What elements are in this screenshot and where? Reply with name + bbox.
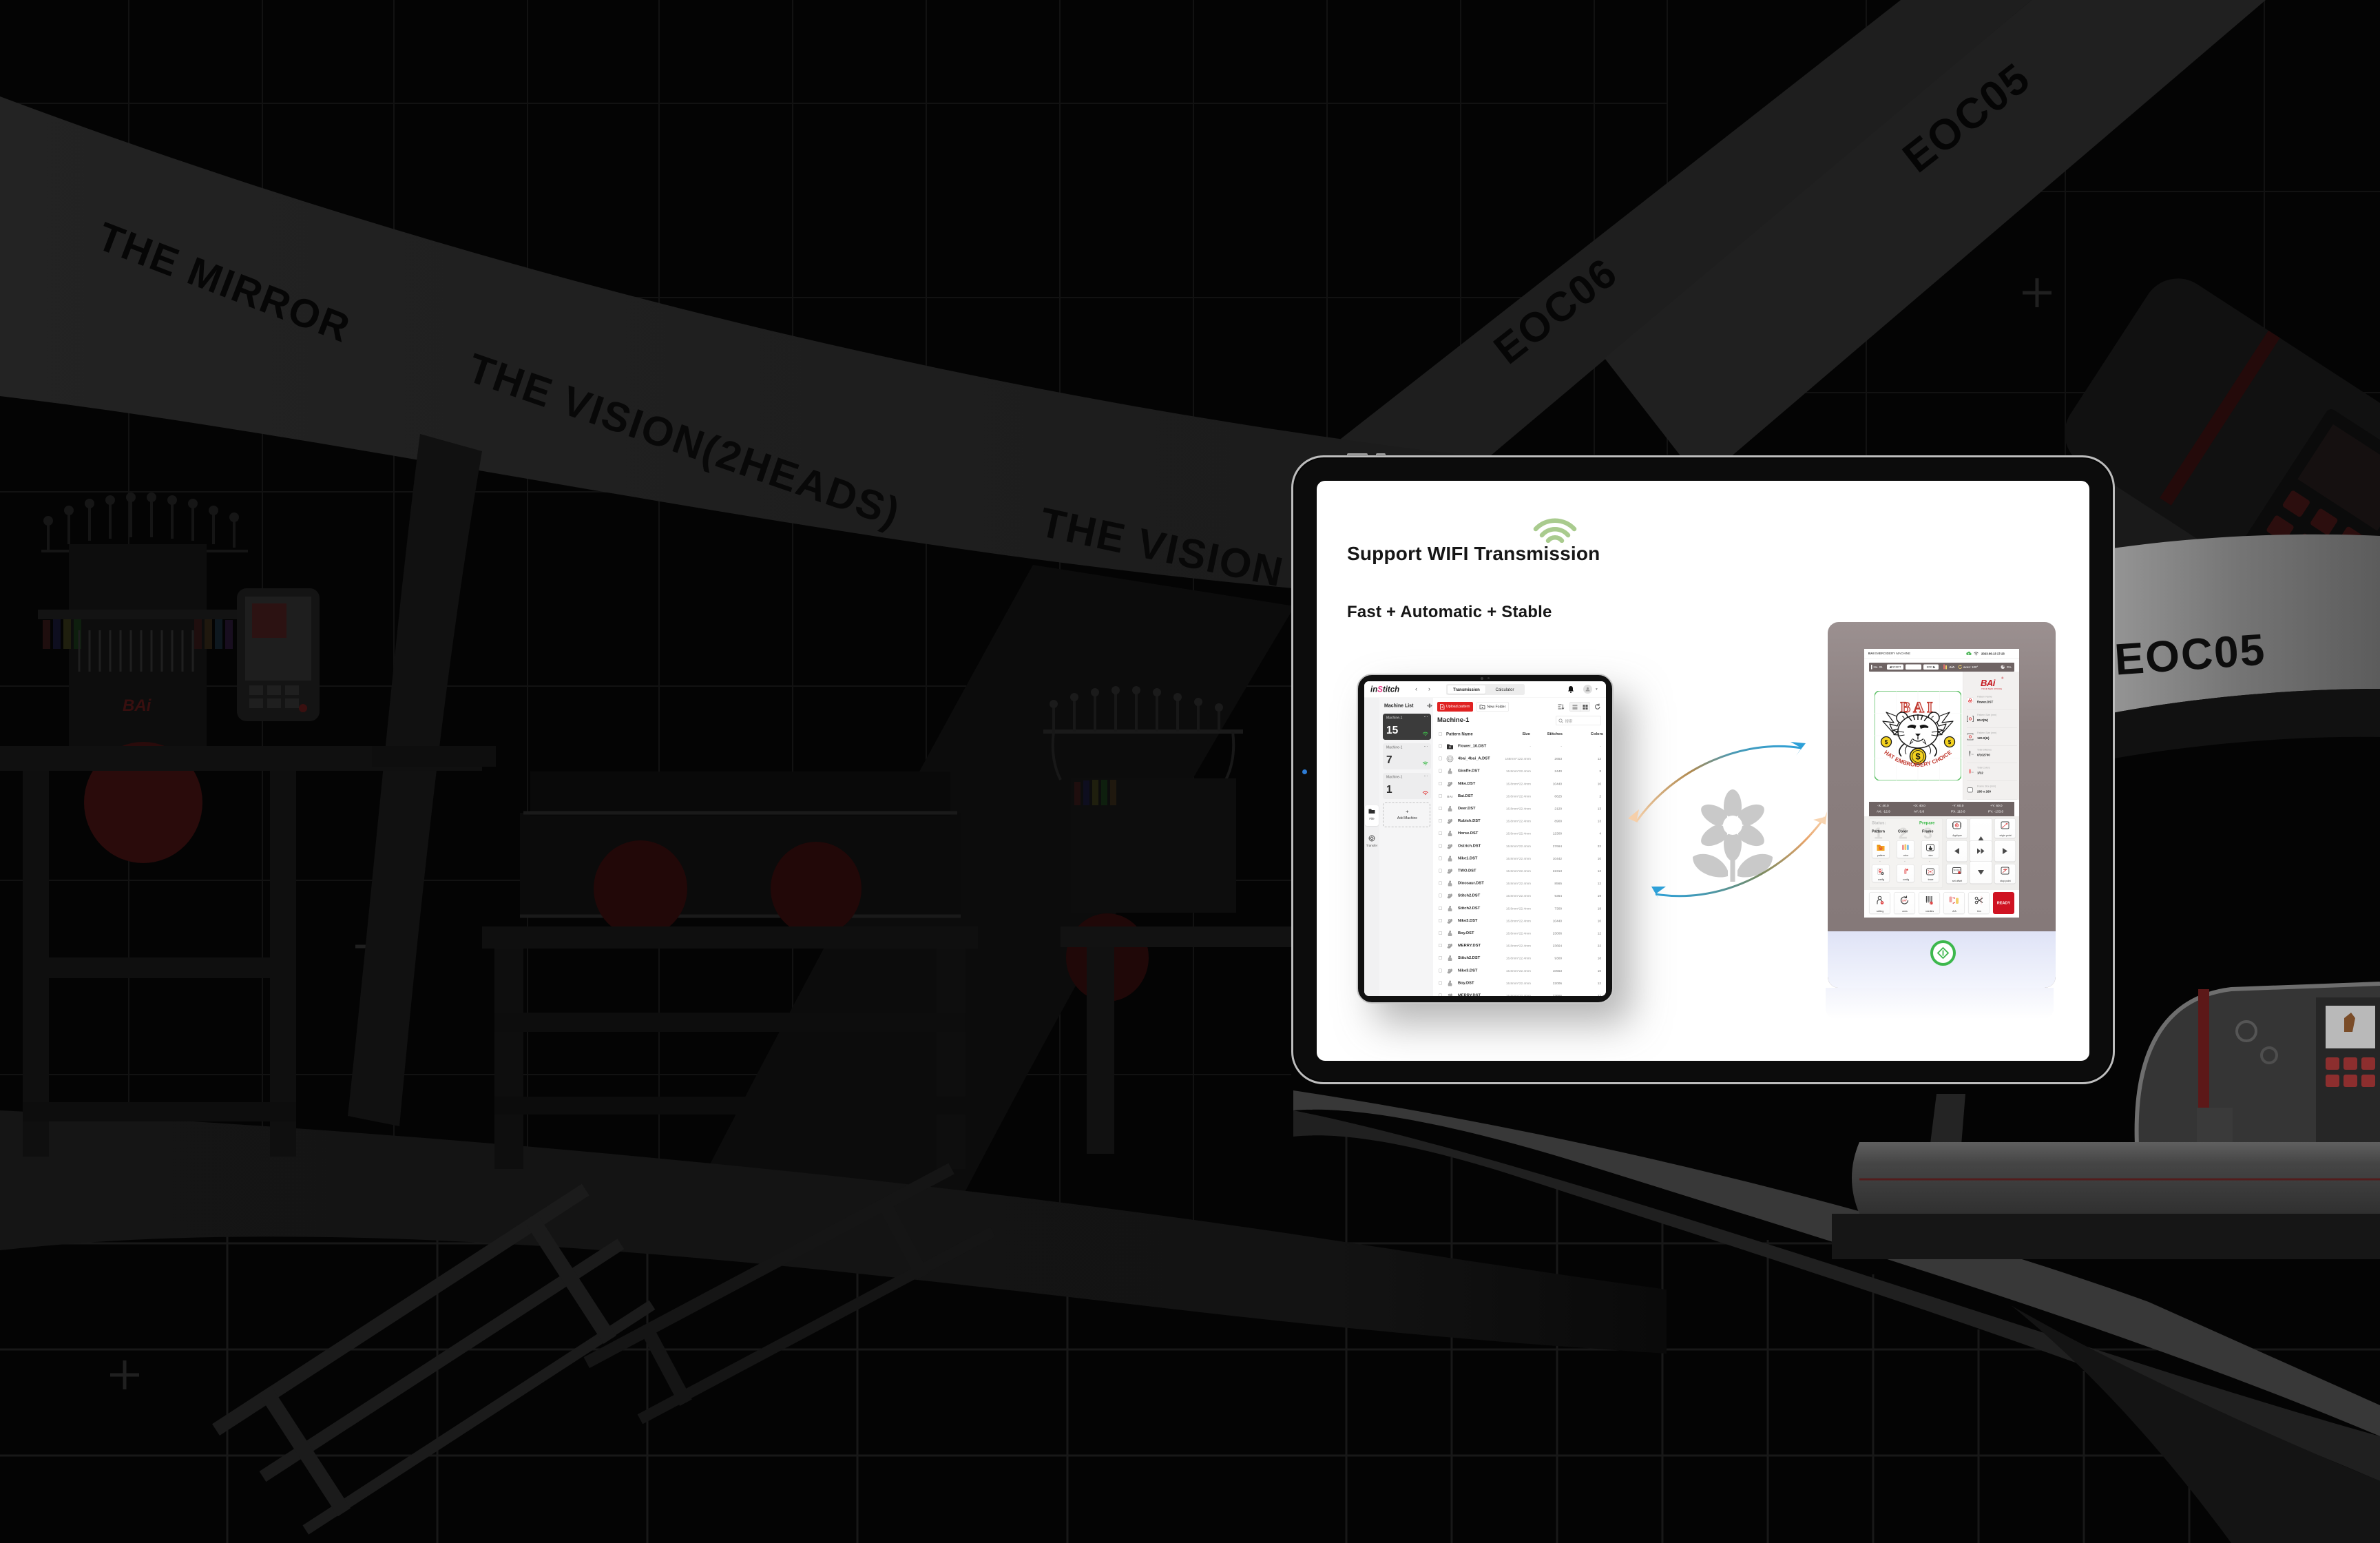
svg-text:No.: No. <box>1972 753 1974 756</box>
svg-text:BAI: BAI <box>1448 758 1452 760</box>
svg-text:No.: No. <box>1972 771 1974 774</box>
svg-text:BAi: BAi <box>123 696 152 715</box>
svg-text:EOC05: EOC05 <box>2113 624 2267 684</box>
svg-text:OFFSET: OFFSET <box>1952 869 1961 872</box>
svg-text:100°: 100° <box>1902 900 1908 902</box>
svg-text:BAI: BAI <box>1447 795 1453 798</box>
svg-text:$: $ <box>1915 752 1921 762</box>
svg-text:17: 17 <box>1930 902 1933 904</box>
svg-text:$: $ <box>1948 739 1952 745</box>
svg-text:$: $ <box>1885 739 1888 745</box>
